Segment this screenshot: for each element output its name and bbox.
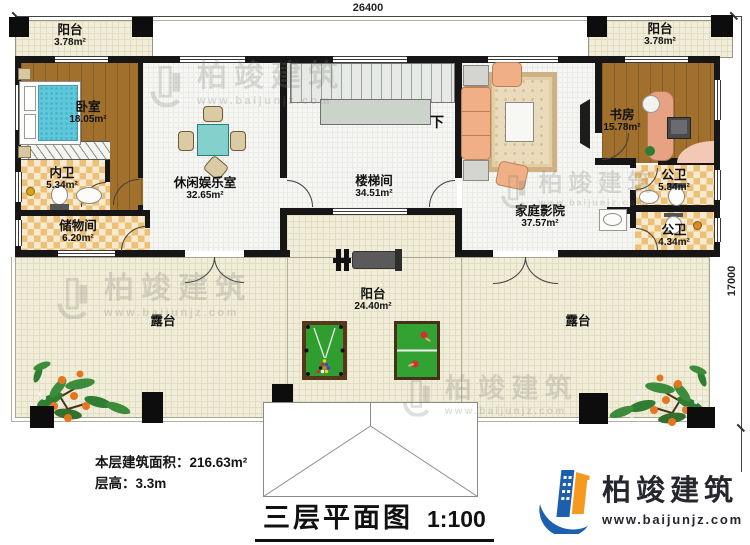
wall (407, 208, 462, 215)
drawing-title-text: 三层平面图 (263, 496, 413, 535)
sink (76, 187, 102, 204)
porch-roof-outline (263, 402, 478, 497)
terrace-parapet-line (11, 257, 12, 421)
dimension-right-value: 17000 (726, 251, 738, 311)
chair (203, 106, 223, 122)
eave-line (153, 20, 588, 21)
brand-logo-icon (536, 464, 598, 534)
column (579, 393, 608, 424)
nightstand (18, 68, 31, 80)
sink (603, 213, 622, 226)
wall (108, 56, 180, 63)
wall (407, 56, 488, 63)
wall (244, 250, 290, 257)
sofa (461, 86, 491, 160)
game-table (197, 124, 229, 156)
column (142, 392, 163, 423)
toilet (665, 216, 682, 234)
wall (558, 56, 625, 63)
chair (178, 131, 194, 151)
wall (245, 56, 333, 63)
brand-url: www.baijunjz.com (602, 512, 743, 527)
window (15, 172, 22, 202)
gym-bench-end (395, 249, 402, 271)
terrace-divider-right (461, 257, 462, 410)
column (132, 17, 153, 37)
floor-area-info: 本层建筑面积：216.63m² (95, 451, 247, 471)
potted-plant-small (645, 146, 655, 156)
bed-pillow (24, 86, 36, 111)
stair-landing (320, 99, 431, 125)
window (714, 170, 721, 200)
drawing-title: 三层平面图 1:100 (255, 496, 494, 542)
bed-pillow (24, 114, 36, 139)
window (15, 220, 22, 246)
floor-plan-canvas: 26400 17000 (0, 0, 750, 545)
dimension-line-right (741, 16, 742, 472)
window (180, 56, 245, 63)
toilet-tank (50, 204, 69, 210)
window (58, 250, 115, 257)
wall (138, 62, 143, 178)
armchair (492, 62, 522, 87)
brand-name: 柏竣建筑 (602, 477, 743, 506)
stair-treads (290, 63, 455, 103)
side-table (463, 160, 489, 181)
wall (455, 215, 462, 250)
toilet (51, 185, 68, 205)
window (714, 80, 721, 120)
billiard-table (302, 321, 347, 380)
wall (105, 160, 110, 182)
shower-knob (26, 187, 35, 196)
sink (639, 190, 659, 204)
window (714, 218, 721, 242)
wall (280, 62, 287, 178)
gym-bench (352, 251, 398, 269)
wall (714, 56, 720, 80)
weight-crossbar (333, 258, 351, 263)
wall (280, 215, 287, 250)
column (711, 15, 733, 37)
wall (630, 250, 636, 257)
toilet (668, 187, 685, 206)
wall (15, 210, 150, 216)
wall (15, 56, 55, 63)
wall (595, 62, 602, 133)
column (30, 406, 54, 428)
wall (714, 200, 720, 218)
column (687, 407, 715, 428)
window (333, 56, 407, 63)
dimension-top-value: 26400 (338, 2, 398, 14)
stair-down-label: 下 (430, 112, 444, 132)
drawing-scale: 1:100 (427, 506, 486, 533)
column (9, 17, 29, 37)
side-table (463, 65, 489, 86)
window (55, 56, 108, 63)
dimension-line-top (15, 16, 741, 17)
wall (280, 208, 333, 215)
window (333, 208, 407, 215)
desk-chair (642, 95, 660, 113)
wall (15, 250, 58, 257)
brand-text-block: 柏竣建筑 www.baijunjz.com (602, 477, 743, 527)
wall (558, 250, 720, 257)
wall (455, 250, 493, 257)
chair (230, 131, 246, 151)
column (587, 16, 607, 37)
wall (630, 212, 636, 228)
coffee-table (505, 102, 534, 142)
wall (630, 190, 636, 205)
shower-head (693, 221, 702, 230)
ping-pong-table (394, 321, 440, 380)
computer-screen (671, 120, 687, 134)
nightstand (18, 146, 31, 158)
window (625, 56, 688, 63)
floor-height-info: 层高：3.3m (95, 472, 166, 492)
wall (115, 250, 185, 257)
bed-blanket (38, 85, 78, 141)
wall (630, 205, 714, 212)
tv-screen (580, 99, 590, 149)
